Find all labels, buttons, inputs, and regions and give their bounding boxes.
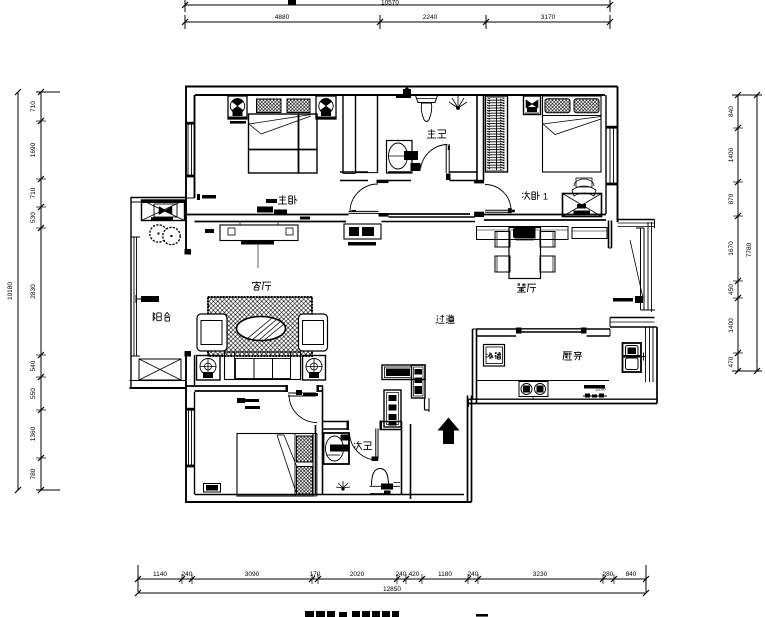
svg-text:2240: 2240 xyxy=(423,14,438,21)
svg-text:3170: 3170 xyxy=(541,14,556,21)
svg-text:1690: 1690 xyxy=(30,142,37,157)
svg-text:1: 1 xyxy=(543,191,548,201)
svg-text:450: 450 xyxy=(728,284,735,295)
svg-text:870: 870 xyxy=(728,193,735,204)
svg-text::1200: :1200 xyxy=(594,387,606,392)
svg-text:550: 550 xyxy=(30,388,37,399)
svg-text:1670: 1670 xyxy=(728,241,735,256)
svg-text:3230: 3230 xyxy=(533,571,548,578)
svg-text:240: 240 xyxy=(396,571,407,578)
svg-text:240: 240 xyxy=(468,571,479,578)
svg-text:12850: 12850 xyxy=(383,586,401,593)
svg-text:170: 170 xyxy=(310,571,321,578)
svg-text:710: 710 xyxy=(30,187,37,198)
svg-text:1140: 1140 xyxy=(153,571,167,578)
svg-text:840: 840 xyxy=(728,106,735,117)
svg-text:780: 780 xyxy=(30,468,37,479)
svg-text:1360: 1360 xyxy=(30,426,37,441)
svg-text:540: 540 xyxy=(30,360,37,371)
svg-text:10570: 10570 xyxy=(381,0,399,7)
svg-text:280: 280 xyxy=(603,571,614,578)
svg-text:3090: 3090 xyxy=(245,571,260,578)
svg-text:840: 840 xyxy=(626,571,637,578)
svg-text:10180: 10180 xyxy=(7,282,14,300)
svg-text:710: 710 xyxy=(30,101,37,112)
svg-text:2830: 2830 xyxy=(30,284,37,299)
svg-text:2020: 2020 xyxy=(350,571,365,578)
svg-text:420: 420 xyxy=(409,571,420,578)
svg-text:530: 530 xyxy=(30,212,37,223)
svg-text:1400: 1400 xyxy=(728,147,735,162)
svg-text:7780: 7780 xyxy=(746,242,753,257)
svg-text:470: 470 xyxy=(728,356,735,367)
svg-text:240: 240 xyxy=(182,571,193,578)
svg-text:1400: 1400 xyxy=(728,318,735,333)
svg-text:1180: 1180 xyxy=(438,571,452,578)
svg-text:4880: 4880 xyxy=(275,14,290,21)
